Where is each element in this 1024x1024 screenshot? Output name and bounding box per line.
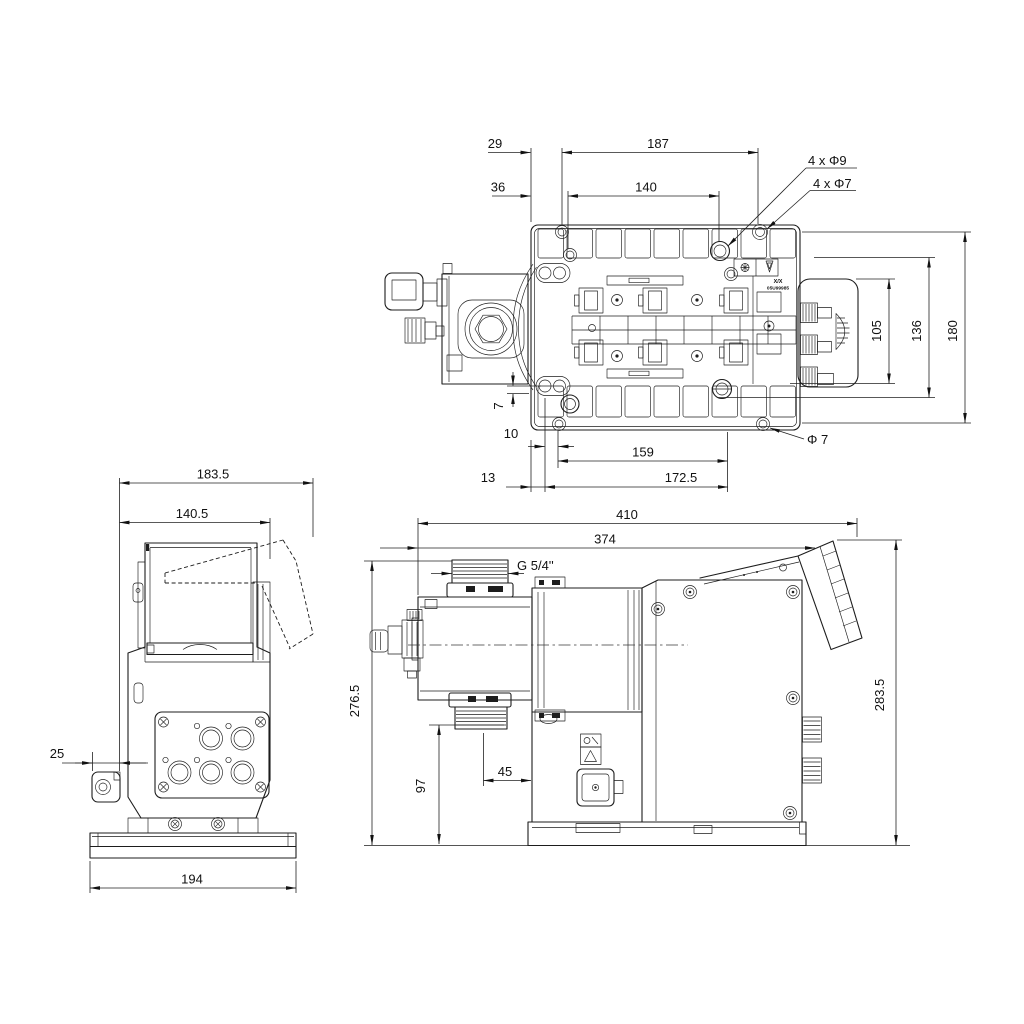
hole-phi7 [753,225,768,240]
side-view-dimensions: 410 374 G 5/4'' 276.5 97 45 283.5 [347,507,902,845]
pump-head-top [442,264,528,385]
dim-283-5: 283.5 [872,679,887,712]
dim-276-5: 276.5 [347,685,362,718]
front-view-geometry [90,478,313,858]
front-view: 183.5 140.5 25 194 [50,467,313,894]
nameplate-line1: X/X [774,279,783,285]
open-lid-phantom [165,540,313,649]
gear-housing [532,588,642,712]
dim-172-5: 172.5 [665,470,698,485]
side-knobs [803,717,822,783]
dial-knob [836,314,845,350]
plate-screws [589,295,775,362]
warning-shield-icon [766,261,773,272]
connector-plate [155,712,269,798]
mounting-holes [536,225,770,431]
warning-labels [581,734,602,765]
dim-180: 180 [945,320,960,342]
control-panel-side [700,541,862,650]
dim-7: 7 [491,402,506,409]
dim-183-5: 183.5 [197,467,230,482]
top-view-dimensions: 29 187 36 140 4 x Φ9 4 x Φ7 105 136 180 … [481,136,971,492]
center-grid [572,316,796,344]
technical-drawing: X/X 05U99985 [0,0,1024,1024]
pump-head-side [412,597,532,700]
dim-45: 45 [498,764,512,779]
dim-105: 105 [869,320,884,342]
gear-icon [741,263,750,272]
nameplate-line2: 05U99985 [767,286,789,292]
dim-36: 36 [491,180,505,195]
dim-25: 25 [50,746,64,761]
dim-g54: G 5/4'' [517,558,554,573]
dim-29: 29 [488,136,502,151]
body-screws [652,586,800,820]
slot-bars [607,276,683,378]
dim-13: 13 [481,470,495,485]
dim-194: 194 [181,872,203,887]
dim-phi7: Φ 7 [807,432,828,447]
dim-159: 159 [632,445,654,460]
top-view: X/X 05U99985 [385,136,971,492]
dim-140-5: 140.5 [176,506,209,521]
nameplate-area: X/X 05U99985 [734,259,789,292]
dim-374: 374 [594,532,616,547]
side-view: 410 374 G 5/4'' 276.5 97 45 283.5 [347,507,910,846]
base-plate-side [528,822,806,846]
cable-gland-top [385,273,447,343]
dim-136: 136 [909,320,924,342]
top-view-geometry: X/X 05U99985 [385,225,858,431]
housing-screws [169,818,225,831]
dim-10: 10 [504,426,518,441]
rib-grid-bottom [538,386,796,417]
suction-port [449,693,511,729]
wall-bracket [92,772,120,802]
dim-140: 140 [635,180,657,195]
front-view-dimensions: 183.5 140.5 25 194 [50,467,313,894]
base-plate-front [90,833,296,858]
motor-housing [642,580,802,822]
mounting-plate [531,225,800,430]
dim-4xphi7: 4 x Φ7 [813,176,852,191]
discharge-port [447,560,513,597]
dim-97: 97 [413,779,428,793]
dim-187: 187 [647,136,669,151]
side-view-geometry [364,541,910,846]
dim-4xphi9: 4 x Φ9 [808,153,847,168]
dim-410: 410 [616,507,638,522]
power-connector [577,769,623,806]
hole-phi9 [711,242,730,261]
control-panel-top [798,279,858,387]
cable-gland-side [370,610,423,679]
